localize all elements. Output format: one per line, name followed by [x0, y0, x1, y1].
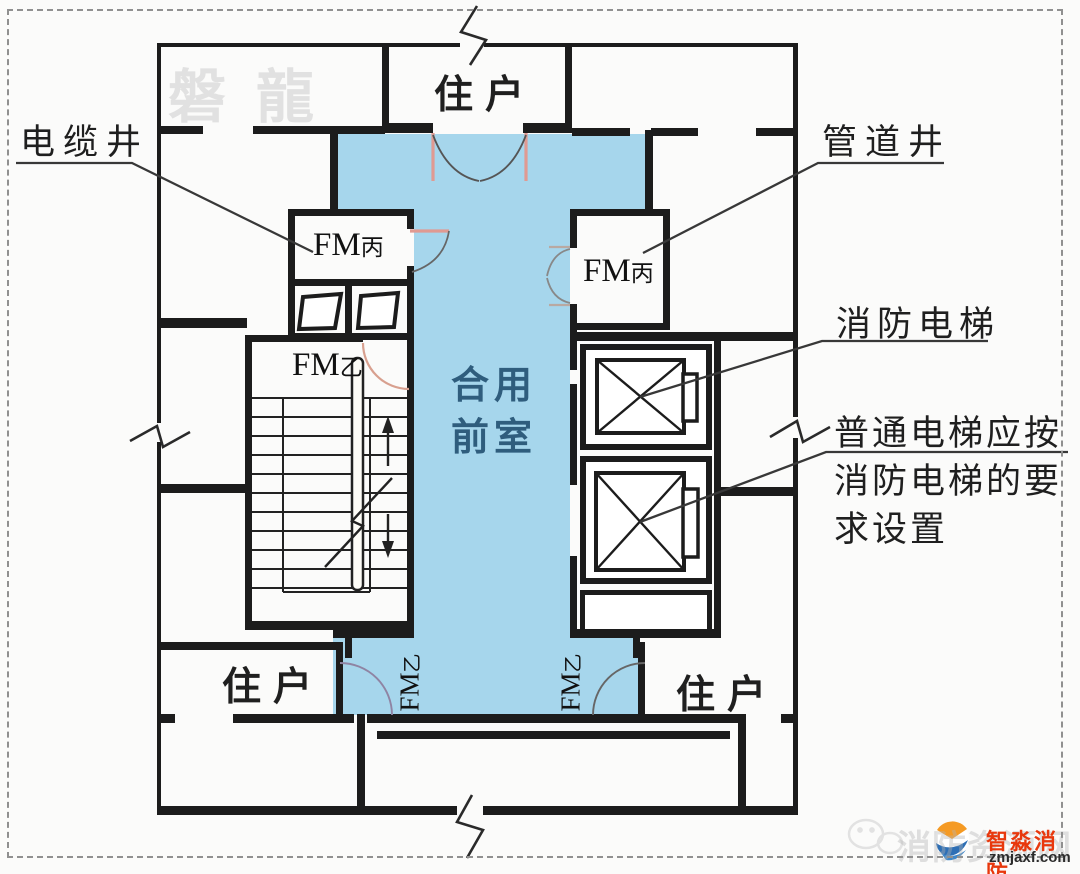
fire-door-label-bottom-left: FM乙 — [382, 650, 442, 710]
resident-room-label-bottom-right: 住户 — [676, 664, 778, 720]
ordinary-elevator-symbol — [596, 473, 698, 570]
ordinary-elevator-note-line2: 消防电梯的要 — [834, 458, 1062, 506]
wechat-icon — [849, 820, 902, 853]
ordinary-elevator-note: 普通电梯应按 消防电梯的要 求设置 — [834, 410, 1062, 554]
ordinary-elevator-note-line3: 求设置 — [834, 506, 1062, 554]
fire-door-label-stair: FM乙 — [292, 347, 363, 384]
stair-handrail — [352, 358, 363, 590]
shared-front-room-label: 合用 前室 — [434, 360, 554, 464]
fire-door-label-bottom-right: FM乙 — [543, 650, 603, 710]
fire-door-label-pipe-shaft: FM丙 — [583, 253, 654, 290]
fire-door-label-cable-shaft: FM丙 — [313, 227, 384, 264]
vent-shaft-louvers — [299, 293, 398, 329]
watermark-panlong: 磐龍 — [168, 50, 344, 134]
resident-room-label-top: 住户 — [420, 64, 550, 120]
cable-shaft-leader — [16, 163, 313, 252]
pipe-shaft-leader — [643, 163, 944, 253]
stair-door-arc — [363, 343, 409, 389]
floor-plan-page: 磐龍 消防资源网 电缆井 管道井 消防电梯 普通电梯应按 消防电梯的要 求设置 … — [0, 0, 1080, 874]
cable-shaft-label: 电缆井 — [20, 114, 149, 165]
resident-room-label-bottom-left: 住户 — [222, 656, 324, 712]
brand-logo-site: zmjaxf.com — [989, 849, 1071, 866]
ordinary-elevator-note-line1: 普通电梯应按 — [834, 410, 1062, 458]
fire-elevator-symbol — [597, 360, 697, 433]
front-room-label-line2: 前室 — [434, 412, 554, 464]
front-room-label-line1: 合用 — [434, 360, 554, 412]
fire-elevator-label: 消防电梯 — [836, 296, 1000, 347]
break-symbol-top — [461, 6, 486, 65]
pipe-shaft-label: 管道井 — [822, 114, 951, 165]
